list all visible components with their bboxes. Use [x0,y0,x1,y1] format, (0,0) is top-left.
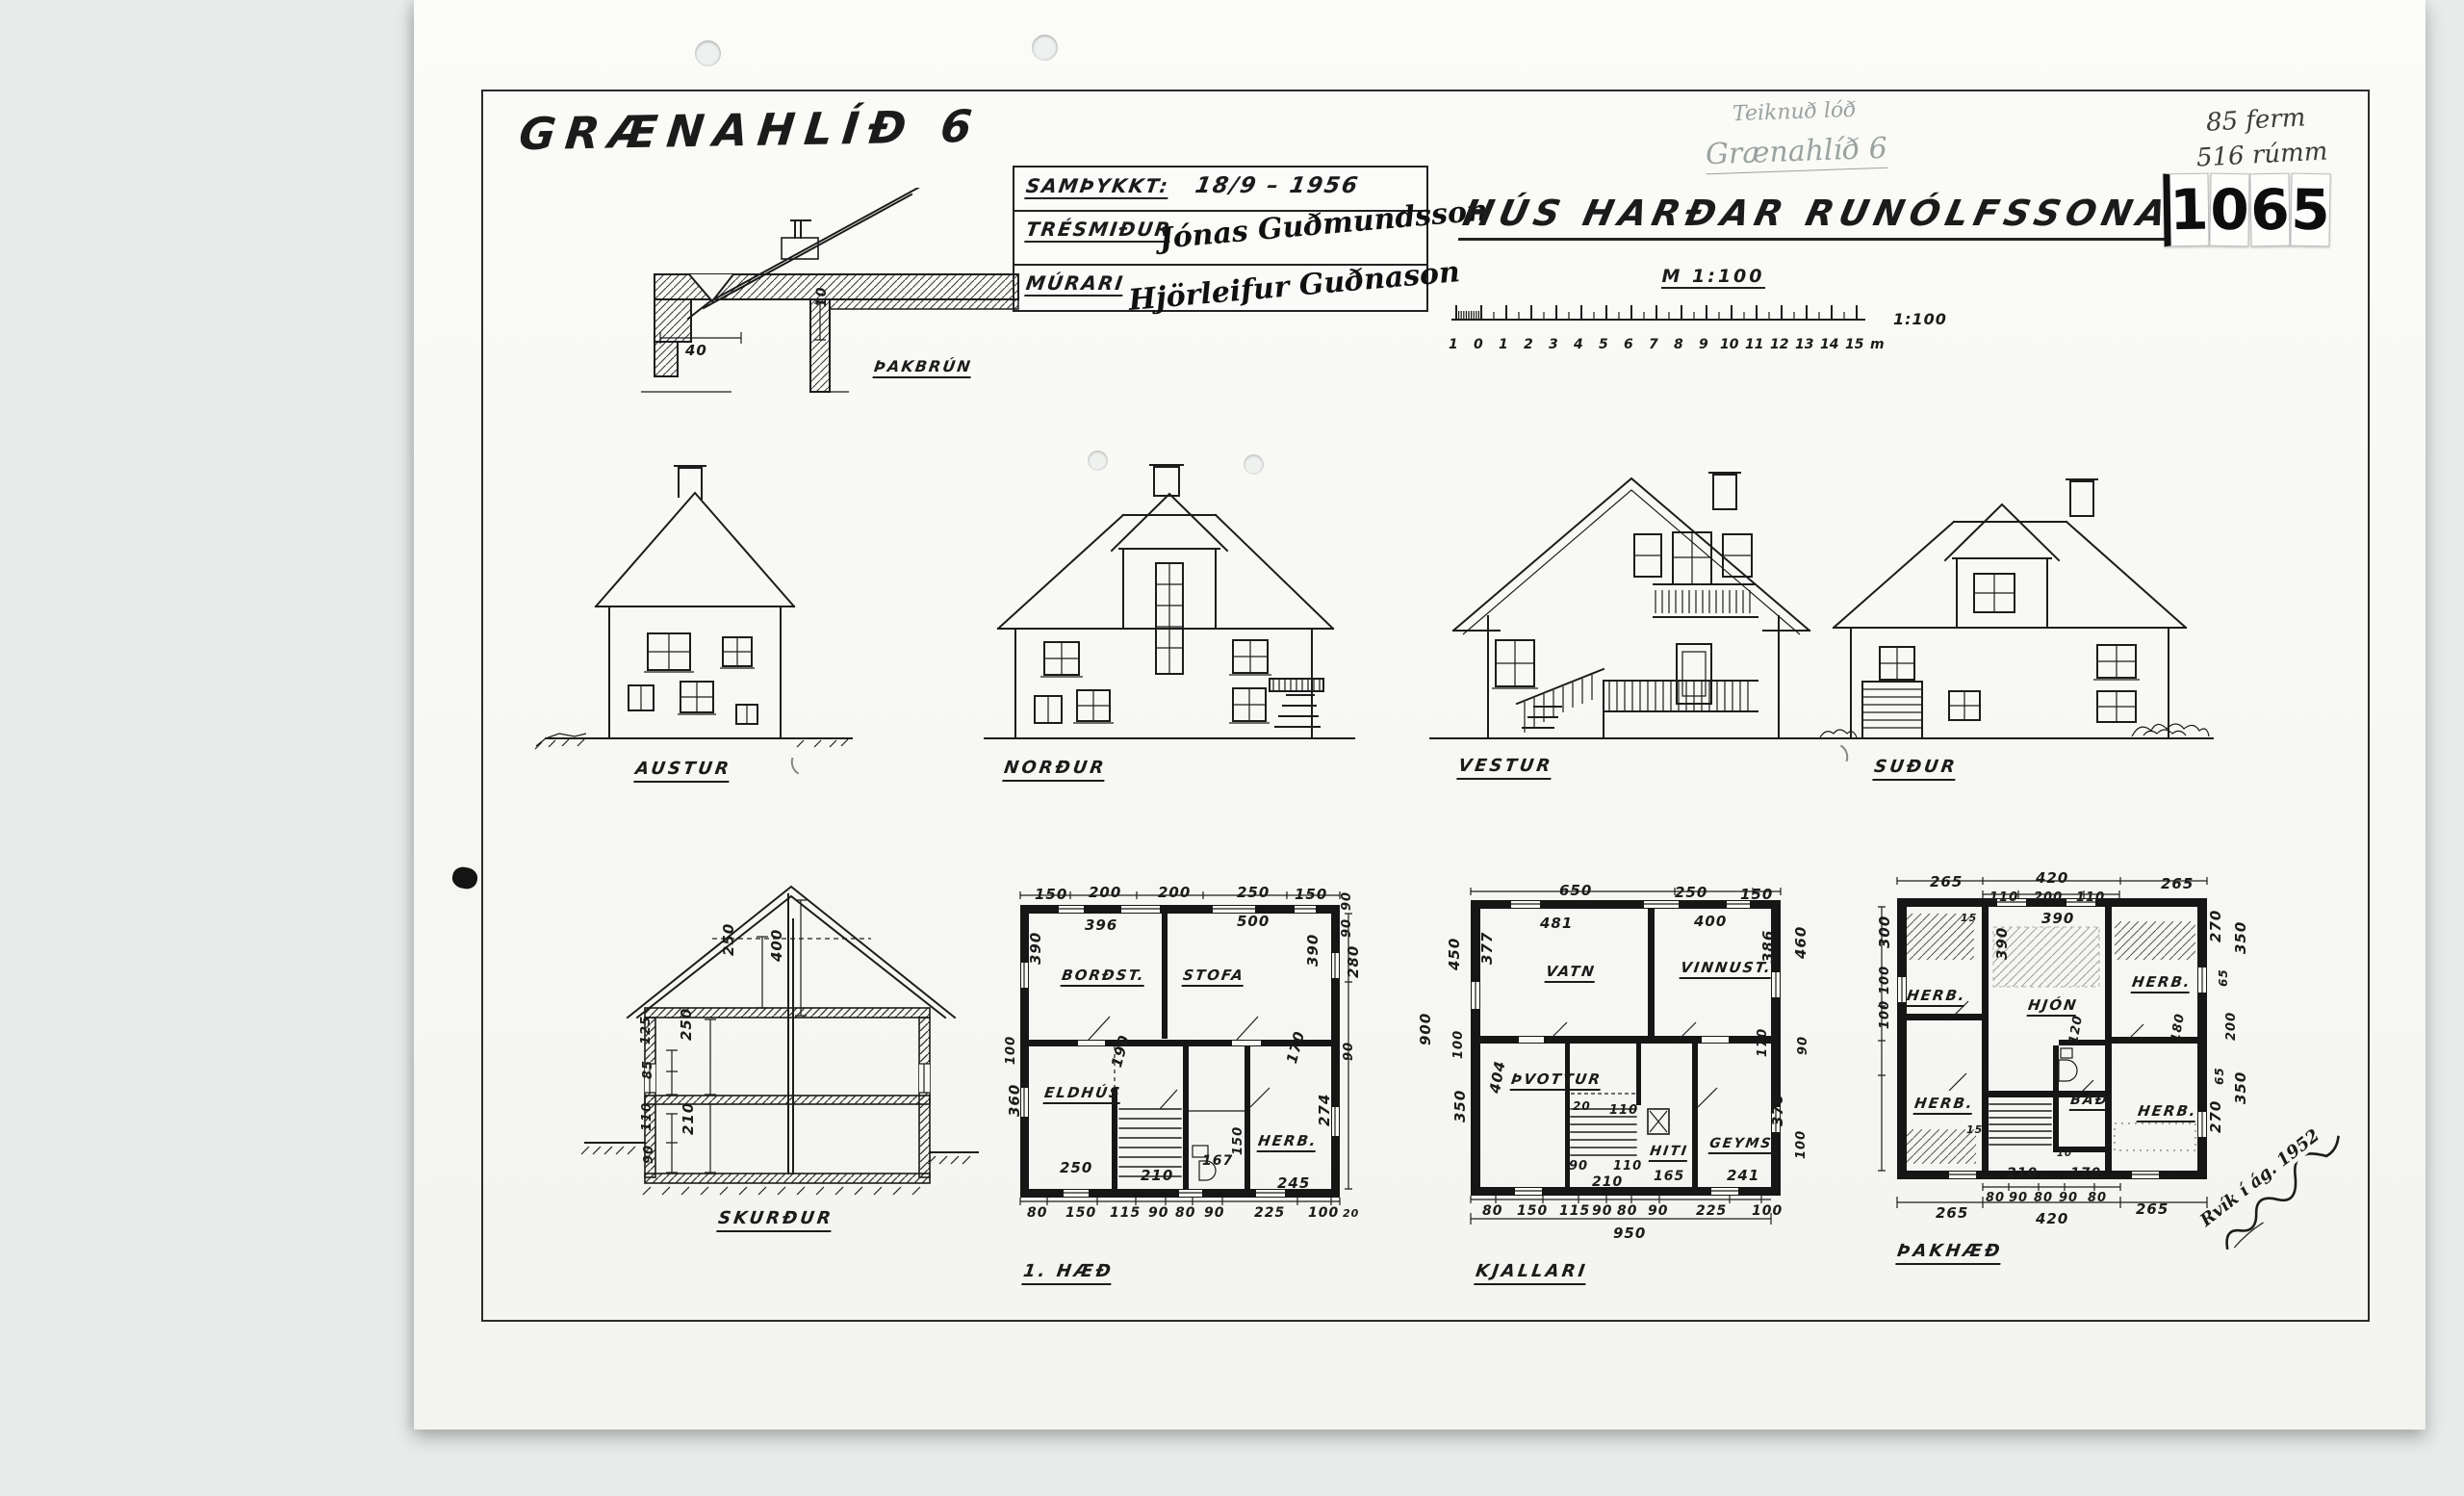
dimension-label: 10 [814,287,830,307]
dimension-label: 80 [1175,1205,1195,1221]
dimension-label: 390 [1993,927,2011,960]
pencil-note-line2: Grænahlíð 6 [1705,132,1887,175]
carpenter-label: TRÉSMIÐUR [1024,218,1173,243]
dimension-label: 100 [1752,1203,1783,1219]
dimension-label: 210 [2007,1166,2038,1181]
elevation-east: AUSTUR [534,445,861,777]
dimension-label: 274 [1316,1094,1333,1126]
sheet-number: 1 0 6 5 [2164,173,2331,246]
dimension-label: 420 [2036,869,2068,887]
dimension-label: 90 [1148,1205,1168,1221]
dimension-label: 150 [1035,886,1067,903]
punch-hole [1032,35,1058,61]
dimension-label: 225 [1254,1205,1285,1221]
dimension-label: 40 [685,342,707,359]
dimension-label: 110 [1989,890,2018,905]
ruler-tick-label: 2 [1524,337,1533,352]
dimension-label: 90 [1796,1036,1810,1055]
plan-basement: KJALLARI 6502501504814003774509003864604… [1423,866,1841,1295]
sheet-number-digit: 6 [2249,173,2290,247]
dimension-label: 110 [1609,1103,1638,1118]
dimension-label: 115 [1110,1205,1141,1221]
dimension-label: 90 [2009,1191,2028,1205]
dimension-label: 350 [1451,1090,1469,1122]
dimension-label: 300 [1876,916,1893,948]
dimension-label: 390 [2041,910,2074,927]
dimension-label: 460 [1792,926,1809,959]
dimension-label: 250 [1675,884,1707,901]
dimension-label: 90 [1592,1203,1612,1219]
section-label: SKURÐUR [716,1208,834,1232]
elevation-south-drawing [1805,443,2219,775]
sheet-number-digit: 0 [2209,173,2249,247]
dimension-label: 200 [1158,884,1191,901]
dimension-label: 90 [1569,1159,1588,1174]
punch-hole [695,40,721,66]
plan-first-floor-label: 1. HÆÐ [1021,1261,1115,1285]
dimension-label: 390 [1027,932,1044,965]
ruler-tick-label: 0 [1474,337,1483,352]
dimension-label: 650 [1559,882,1592,899]
ruler-tick-label: 1 [1499,337,1508,352]
dimension-label: 80 [1482,1203,1502,1219]
sheet-number-digit: 1 [2163,173,2209,247]
dimension-label: 481 [1540,915,1573,932]
dimension-label: 125 [639,1016,654,1045]
dimension-label: 265 [1936,1204,1968,1222]
dimension-label: 377 [1478,932,1496,965]
dimension-label: 170 [2070,1166,2101,1181]
elevation-east-drawing [534,445,861,777]
dimension-label: 150 [1740,886,1773,903]
scanned-blueprint-page: GRÆNAHLÍÐ 6 SAMÞYKKT: 18/9 – 1956 TRÉSMI… [0,0,2464,1496]
elevation-north: NORÐUR [977,438,1362,777]
dimension-label: 200 [2224,1012,2239,1041]
dimension-label: 900 [1417,1013,1434,1045]
dimension-label: 167 [1202,1153,1233,1169]
dimension-label: 150 [1065,1205,1096,1221]
dimension-label: 80 [1986,1191,2005,1205]
eave-detail-label: ÞAKBRÚN [872,357,973,378]
stamp-row-carpenter: TRÉSMIÐUR Jónas Guðmundsson [1014,212,1426,266]
dimension-label: 100 [1451,1030,1466,1059]
scale-label: M 1:100 [1636,266,1790,289]
dimension-label: 386 [1759,930,1777,963]
dimension-label: 270 [2207,910,2224,942]
dimension-label: 250 [720,923,737,956]
dimension-label: 245 [1277,1174,1310,1192]
stamp-row-mason: MÚRARI Hjörleifur Guðnason [1014,266,1426,320]
dimension-label: 250 [1237,884,1270,901]
dimension-label: 350 [2232,1071,2249,1104]
dimension-label: 420 [2036,1210,2068,1227]
dimension-label: 270 [2207,1100,2224,1133]
dimension-label: 90 [1342,1042,1356,1061]
dimension-label: 396 [1085,916,1117,934]
dimension-label: 450 [1446,938,1463,970]
dimension-label: 265 [2136,1200,2169,1218]
area-note: 85 ferm [2205,103,2306,137]
dimension-label: 360 [1006,1084,1023,1117]
dimension-label: 225 [1696,1203,1727,1219]
dimension-label: 90 [1340,918,1354,938]
elevation-north-label: NORÐUR [1002,758,1107,782]
dimension-label: 265 [2161,875,2194,892]
ruler-tick-label: 10 [1720,337,1738,352]
dimension-label: 150 [1231,1126,1245,1155]
ruler-tick-label: 9 [1699,337,1708,352]
pencil-note-line1: Teiknuð lóð [1732,98,1857,126]
sheet-title-text: HÚS HARÐAR RUNÓLFSSONAR [1458,193,2209,241]
elevation-west: VESTUR [1424,438,1838,777]
elevation-east-label: AUSTUR [633,759,732,783]
dimension-label: 80 [1617,1203,1637,1219]
dimension-label: 90 [2059,1191,2078,1205]
dimension-label: 350 [2232,921,2249,954]
approval-stamp-box: SAMÞYKKT: 18/9 – 1956 TRÉSMIÐUR Jónas Gu… [1013,166,1428,312]
dimension-label: 370 [1769,1094,1786,1126]
dimension-label: 250 [678,1008,695,1041]
ruler-tick-label: 15 [1845,337,1863,352]
plan-attic-label: ÞAKHÆÐ [1895,1241,2004,1265]
dimension-label: 165 [1654,1169,1684,1184]
dimension-label: 210 [1141,1167,1173,1184]
approved-label: SAMÞYKKT: [1024,174,1170,199]
dimension-label: 241 [1727,1167,1759,1184]
dimension-label: 10 [2057,1148,2072,1159]
dimension-label: 210 [680,1102,697,1135]
dimension-label: 65 [2213,1067,2226,1085]
dimension-label: 115 [1559,1203,1590,1219]
ruler-tick-label: 8 [1674,337,1683,352]
dimension-label: 150 [1295,886,1327,903]
dimension-label: 100 [1878,966,1892,994]
dimension-label: 250 [1060,1159,1092,1176]
dimension-label: 390 [1304,934,1322,967]
dimension-label: 110 [1613,1159,1642,1174]
dimension-label: 265 [1930,873,1963,890]
dimension-label: 210 [1592,1174,1623,1190]
ruler-tick-label: m [1870,337,1885,352]
dimension-label: 90 [642,1145,656,1164]
plan-basement-label: KJALLARI [1474,1261,1589,1285]
section: SKURÐUR 2504002501258521011090 [558,862,987,1232]
scale-label-text: M 1:100 [1661,266,1764,289]
ruler-tick-label: 14 [1820,337,1838,352]
dimension-label: 80 [2088,1191,2107,1205]
sheet-number-digit: 5 [2290,173,2330,247]
elevation-north-drawing [977,438,1362,777]
dimension-label: 15 [1966,1123,1983,1136]
ruler-tick-label: 13 [1795,337,1813,352]
dimension-label: 100 [1794,1130,1809,1159]
dimension-label: 80 [1027,1205,1047,1221]
plot-title: GRÆNAHLÍÐ 6 [517,100,985,160]
dimension-label: 170 [1756,1028,1770,1057]
elevation-west-drawing [1424,438,1838,777]
dimension-label: 85 [641,1060,655,1079]
mason-label: MÚRARI [1024,271,1126,297]
ruler-tick-label: 6 [1624,337,1633,352]
dimension-label: 280 [1345,945,1362,978]
scale-ruler: 1:100 10123456789101112131415m [1449,287,1997,369]
approved-date: 18/9 – 1956 [1193,173,1361,198]
elevation-west-label: VESTUR [1456,756,1553,780]
dimension-label: 150 [1517,1203,1548,1219]
dimension-label: 110 [2076,890,2105,905]
dimension-label: 90 [1204,1205,1224,1221]
dimension-label: 200 [2034,890,2063,905]
dimension-label: 90 [1648,1203,1668,1219]
plan-first-floor: 1. HÆÐ 150200200250150396500390390909028… [1006,866,1400,1295]
eave-detail: ÞAKBRÚN 4010 [597,188,1030,400]
dimension-label: 400 [768,929,785,962]
dimension-label: 400 [1694,913,1727,930]
dimension-label: 200 [1089,884,1121,901]
elevation-south: SUÐUR [1805,443,2219,775]
dimension-label: 100 [1308,1205,1339,1221]
ruler-tick-label: 3 [1549,337,1558,352]
ruler-tick-label: 5 [1599,337,1608,352]
dimension-label: 15 [1961,912,1977,924]
dimension-label: 950 [1613,1225,1646,1242]
ruler-tick-label: 7 [1649,337,1658,352]
dimension-label: 20 [1573,1099,1591,1113]
sheet-title: HÚS HARÐAR RUNÓLFSSONAR [1463,193,2098,241]
scale-ratio: 1:100 [1893,310,1947,328]
dimension-label: 80 [2034,1191,2053,1205]
dimension-label: 65 [2217,968,2230,987]
dimension-label: 20 [1343,1207,1359,1220]
dimension-label: 100 [1004,1036,1018,1065]
dimension-label: 100 [1878,1000,1892,1029]
dimension-label: 500 [1237,913,1270,930]
dimension-label: 110 [640,1102,654,1131]
elevation-south-label: SUÐUR [1872,757,1959,781]
section-drawing [558,862,987,1232]
ruler-tick-label: 11 [1745,337,1763,352]
ruler-tick-label: 4 [1574,337,1583,352]
ruler-tick-label: 1 [1449,337,1458,352]
dimension-label: 90 [1340,891,1354,911]
ruler-tick-label: 12 [1770,337,1788,352]
